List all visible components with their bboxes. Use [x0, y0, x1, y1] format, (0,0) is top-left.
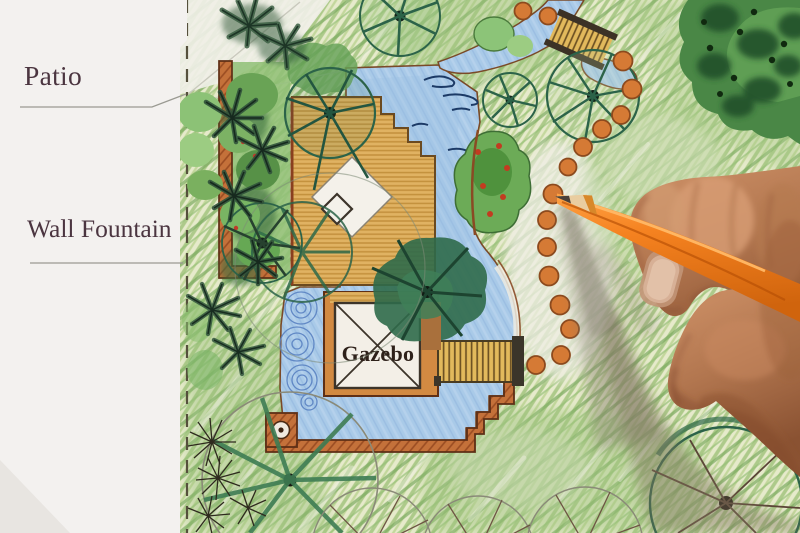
svg-text:Patio: Patio — [24, 60, 82, 91]
svg-text:Gazebo: Gazebo — [342, 341, 415, 366]
svg-text:Wall Fountain: Wall Fountain — [27, 214, 172, 243]
